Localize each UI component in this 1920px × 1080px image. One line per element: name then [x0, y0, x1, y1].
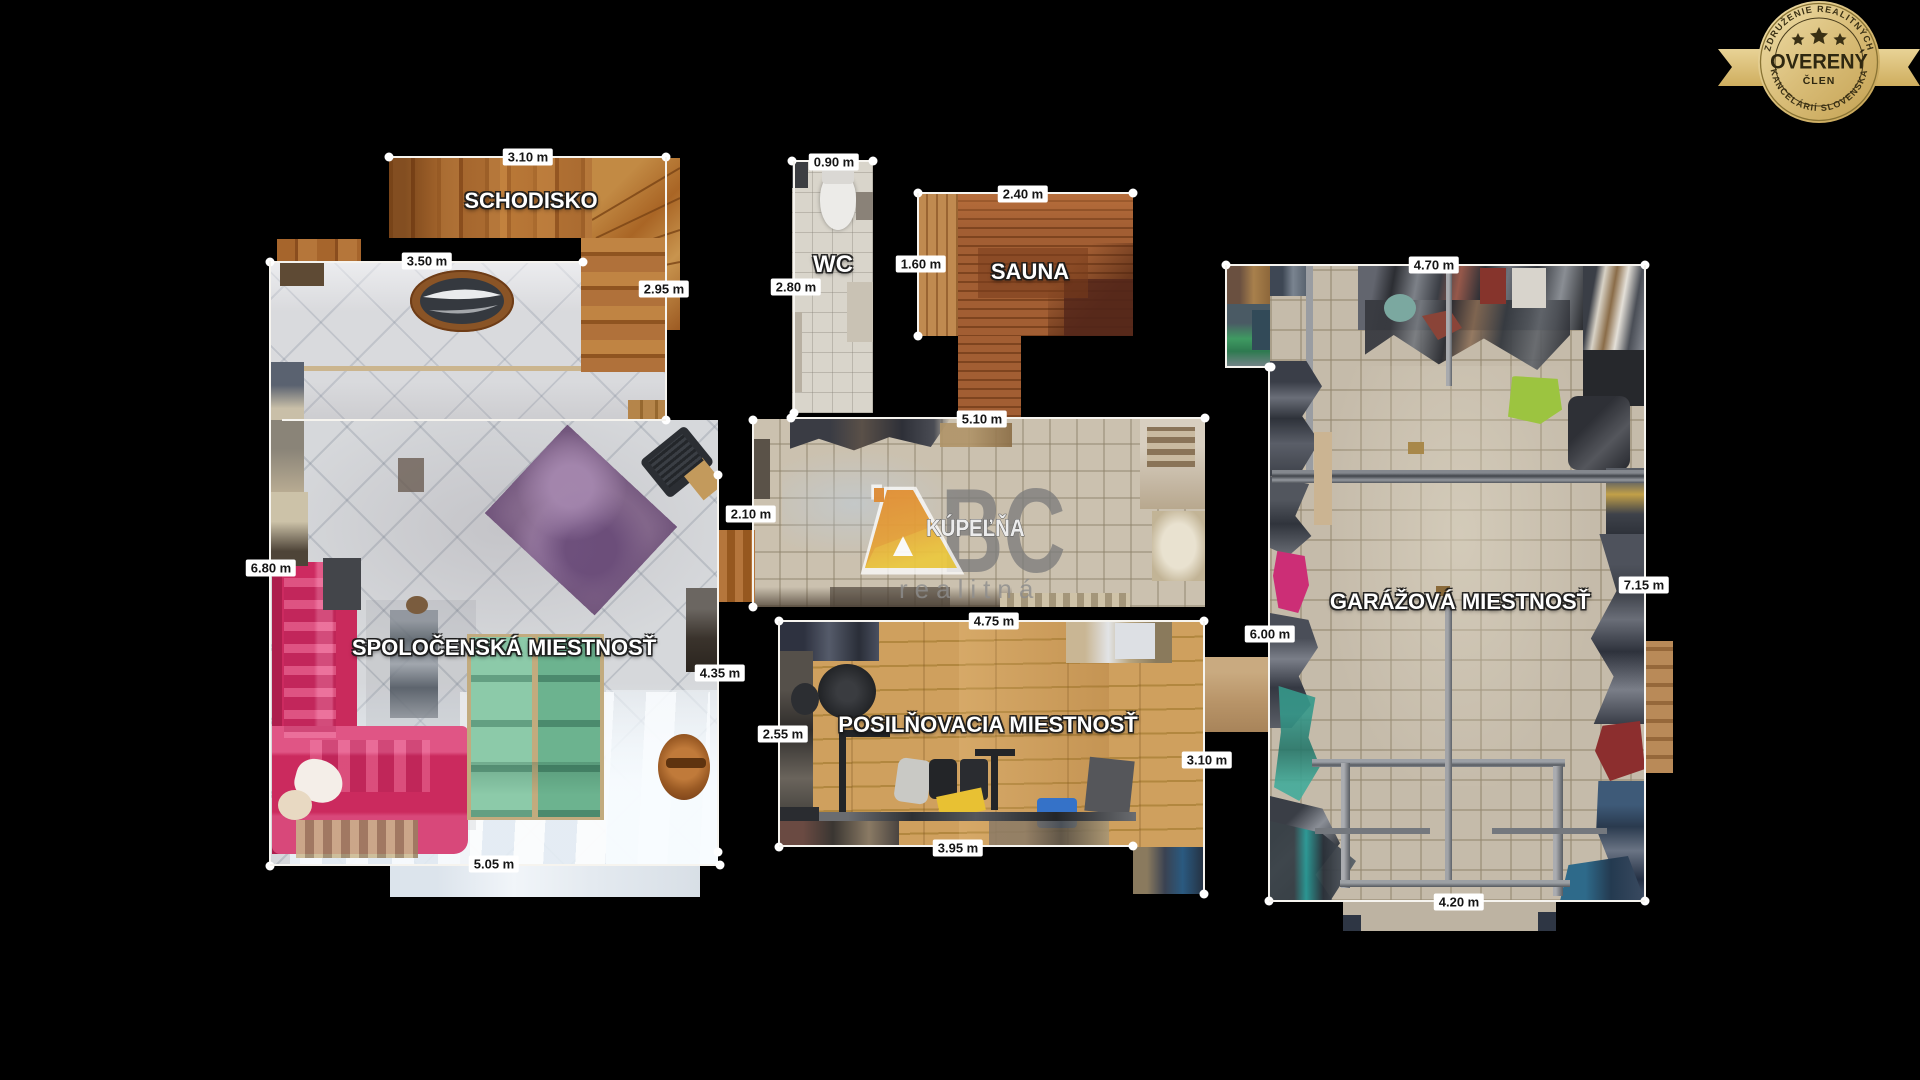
svg-text:realitná: realitná: [899, 574, 1040, 603]
svg-text:OVERENÝ: OVERENÝ: [1770, 49, 1868, 74]
svg-text:ČLEN: ČLEN: [1803, 74, 1836, 87]
svg-text:KÚPEĽŇA: KÚPEĽŇA: [926, 514, 1025, 541]
